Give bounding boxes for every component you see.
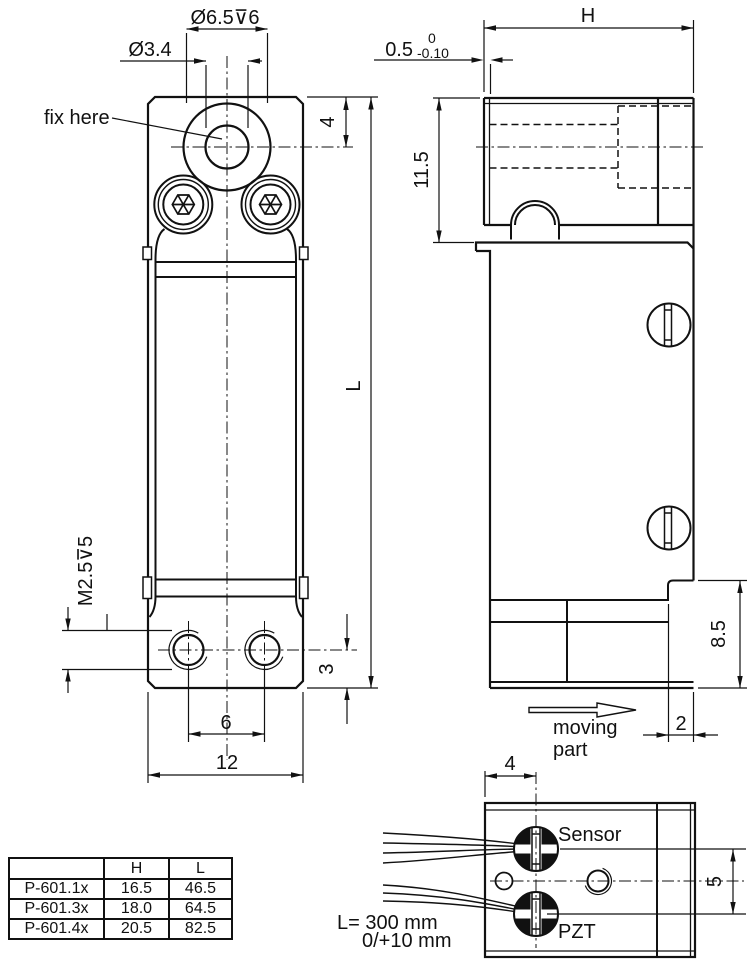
dim-step-label: 2 (675, 713, 686, 735)
dim-through-hole: Ø3.4 (120, 39, 262, 128)
front-flexure-tabs (143, 247, 308, 599)
model-name: P-601.4x (9, 919, 104, 939)
table-row: P-601.1x 16.5 46.5 (9, 879, 232, 899)
dim-top-section-label: 11.5 (411, 151, 433, 188)
tolerance-value-label: 0.5 (385, 39, 413, 61)
moving-part-label-2: part (553, 739, 588, 761)
model-l-value: 64.5 (169, 899, 232, 919)
front-crossbar-bottom (156, 580, 297, 597)
model-h-value: 20.5 (104, 919, 169, 939)
dim-wire-pos-label: 4 (504, 753, 515, 775)
fix-here-label: fix here (44, 107, 110, 129)
dim-step: 2 (643, 604, 718, 742)
dim-width: 12 (148, 692, 303, 783)
dim-thread-label: M2.5⊽5 (75, 536, 97, 606)
side-dimensions: H 0.5 0 -0.10 11.5 8.5 (374, 5, 747, 761)
model-l-value: 46.5 (169, 879, 232, 899)
dim-hole-spacing-label: 6 (220, 712, 231, 734)
tolerance-lower-label: -0.10 (417, 45, 449, 61)
cable-length-label-2: 0/+10 mm (362, 930, 451, 952)
dim-top-section: 11.5 (411, 98, 480, 243)
front-crossbar-top (156, 262, 297, 277)
front-centerlines (158, 56, 357, 760)
table-row: P-601.3x 18.0 64.5 (9, 899, 232, 919)
model-name: P-601.1x (9, 879, 104, 899)
dim-height-H: H (484, 5, 694, 93)
slotted-screw-bottom-icon (648, 507, 691, 550)
dim-length-L: L (307, 97, 378, 688)
table-header-h: H (104, 858, 169, 879)
dim-length-label: L (343, 380, 365, 391)
table-header-model (9, 858, 104, 879)
model-l-value: 82.5 (169, 919, 232, 939)
dim-edge-dist: 3 (316, 614, 350, 724)
dim-counterbore-label: Ø6.5⊽6 (190, 7, 259, 29)
table-header-l: L (169, 858, 232, 879)
dim-wire-pos: 4 (485, 753, 536, 797)
table-header-row: H L (9, 858, 232, 879)
front-inner-slit-right (287, 229, 302, 617)
moving-part-label-1: moving (553, 717, 617, 739)
front-view (143, 56, 357, 760)
model-name: P-601.3x (9, 899, 104, 919)
side-arch-notch (511, 201, 559, 240)
dim-plate-tolerance: 0.5 0 -0.10 (374, 30, 513, 94)
model-spec-table: H L P-601.1x 16.5 46.5 P-601.3x 18.0 64.… (8, 857, 233, 940)
front-inner-slit-left (150, 229, 165, 617)
side-top-block-thin (484, 98, 694, 225)
model-h-value: 18.0 (104, 899, 169, 919)
dim-top-offset: 4 (307, 97, 378, 147)
dim-edge-dist-label: 3 (316, 663, 338, 674)
hex-screw-left-icon (154, 176, 212, 234)
dim-moving-height-label: 8.5 (708, 620, 730, 648)
technical-drawing: Ø6.5⊽6 Ø3.4 fix here 4 L (0, 0, 750, 966)
tolerance-upper-label: 0 (428, 30, 436, 46)
dim-top-offset-label: 4 (317, 116, 339, 127)
slotted-screw-top-icon (648, 304, 691, 347)
dim-moving-height: 8.5 (698, 581, 747, 689)
front-dimensions: Ø6.5⊽6 Ø3.4 fix here 4 L (44, 7, 378, 783)
side-view (476, 98, 704, 688)
dim-height-label: H (581, 5, 595, 27)
dim-wire-spacing-label: 5 (704, 876, 726, 887)
dim-through-hole-label: Ø3.4 (128, 39, 171, 61)
dim-width-label: 12 (216, 752, 238, 774)
technical-drawing-page: Ø6.5⊽6 Ø3.4 fix here 4 L (0, 0, 750, 966)
sensor-wires (383, 833, 526, 863)
moving-part-annotation: moving part (529, 703, 636, 761)
annotation-fix-here: fix here (44, 107, 222, 139)
hex-screw-right-icon (242, 176, 300, 234)
table-row: P-601.4x 20.5 82.5 (9, 919, 232, 939)
sensor-label: Sensor (558, 824, 622, 846)
side-moving-section (490, 581, 694, 683)
pzt-label: PZT (558, 921, 596, 943)
moving-part-arrow-icon (529, 703, 636, 717)
model-h-value: 16.5 (104, 879, 169, 899)
